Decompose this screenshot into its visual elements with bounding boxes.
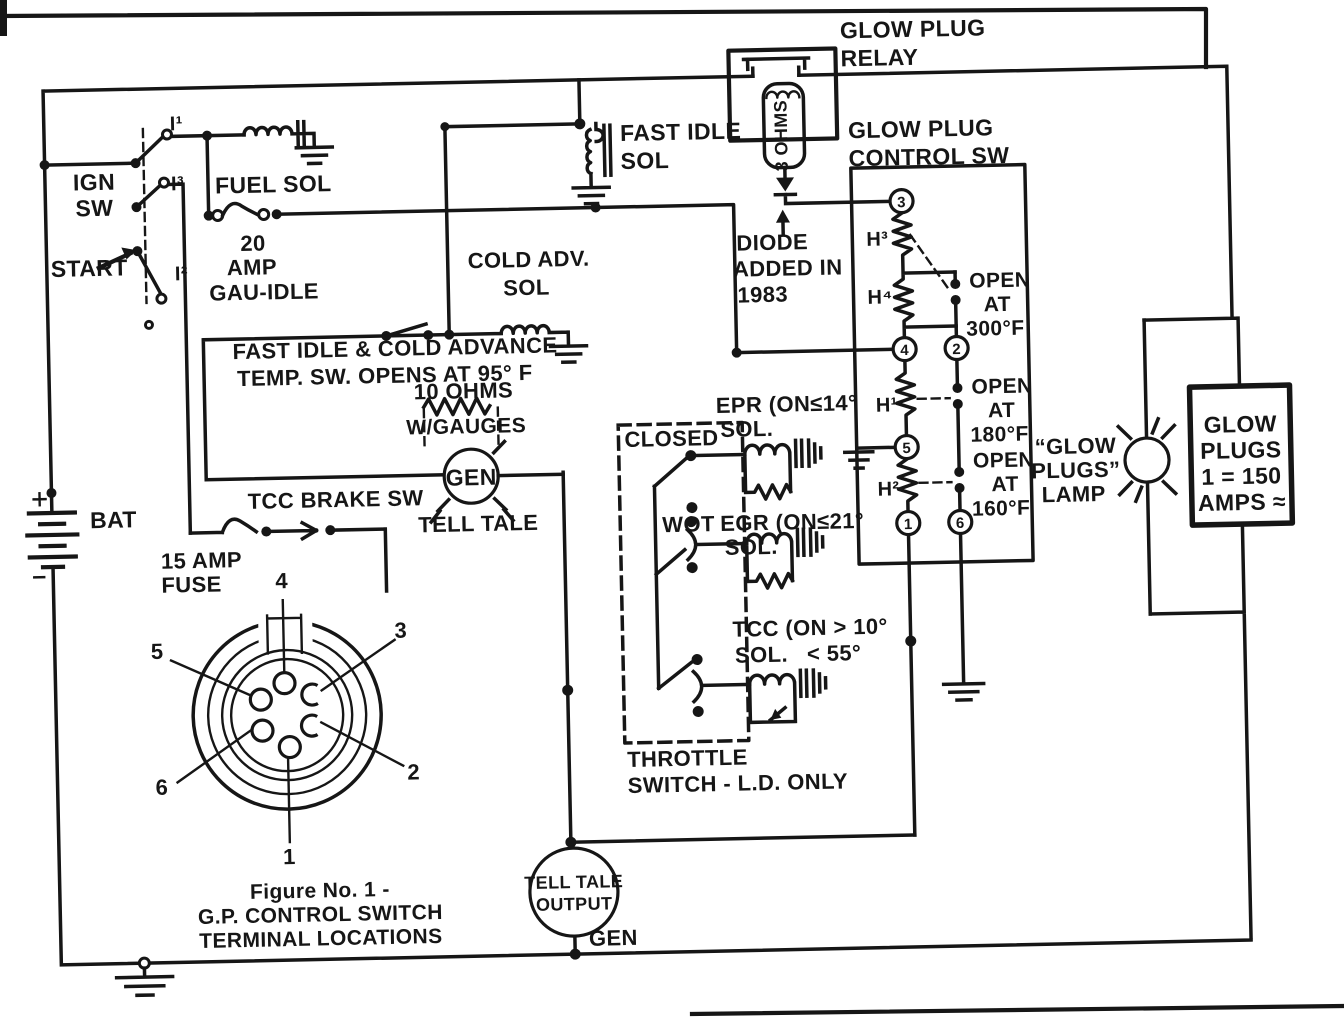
terminal-1: 1 — [904, 516, 913, 533]
lamp-label-3: LAMP — [1041, 481, 1105, 507]
tcc-label-2: SOL. — [735, 642, 788, 668]
tell-tale-label: TELL TALE — [418, 510, 539, 538]
open180-label-2: AT — [988, 399, 1016, 423]
terminal-5: 5 — [902, 440, 911, 457]
wiring-diagram-figure: BAT IGN SW START I¹ I³ I² — [0, 0, 1344, 1024]
diode-note-1: DIODE — [736, 229, 808, 255]
battery-label: BAT — [90, 506, 137, 533]
open300-label-1: OPEN — [969, 268, 1031, 292]
fuse20-label-2: AMP — [227, 254, 278, 280]
open160-label-2: AT — [991, 473, 1019, 497]
heater-h3-label: H³ — [866, 228, 888, 250]
contact-i1-label: I¹ — [170, 113, 183, 135]
cold-adv-label-1: COLD ADV. — [467, 246, 589, 274]
figure-caption: Figure No. 1 - G.P. CONTROL SWITCH TERMI… — [197, 877, 443, 953]
gen-tell-tale-lamp: GEN 10 OHMS W/GAUGES TELL TALE — [405, 376, 564, 537]
egr-label-1: EGR (ON≤21° — [720, 508, 864, 536]
open180-label-1: OPEN — [971, 374, 1033, 398]
open160-label-3: 160°F — [972, 496, 1031, 520]
heater-h2-label: H² — [877, 478, 899, 500]
glow-plug-control-switch: 3 4 2 5 1 6 H³ H⁴ H¹ H² OPEN AT 300°F OP… — [838, 113, 1042, 836]
tto-label-1: TELL TALE — [524, 871, 623, 893]
control-sw-label-1: GLOW PLUG — [848, 114, 994, 143]
pin-6-label: 6 — [155, 775, 168, 800]
fuel-sol-label: FUEL SOL — [215, 170, 332, 198]
pin-1-label: 1 — [283, 844, 296, 869]
glow-plugs-label-1: GLOW — [1203, 410, 1277, 438]
tcc-brake-switch: TCC BRAKE SW 15 AMP FUSE — [159, 485, 425, 598]
tto-label-2: OUTPUT — [536, 893, 613, 915]
ign-sw-label-1: IGN — [73, 169, 116, 196]
throttle-label-2: SWITCH - L.D. ONLY — [627, 768, 848, 798]
fuse20-label-1: 20 — [240, 230, 266, 256]
egr-label-2: SOL. — [724, 534, 777, 560]
relay-label-1: GLOW PLUG — [840, 14, 986, 43]
open160-label-1: OPEN — [973, 448, 1035, 472]
fast-idle-label-2: SOL — [620, 147, 669, 174]
relay-coil-ohms-label: 3 OHMS — [770, 100, 791, 172]
open300-label-3: 300°F — [966, 317, 1025, 341]
fast-idle-label-1: FAST IDLE — [620, 117, 742, 146]
tcc-brake-label: TCC BRAKE SW — [247, 485, 423, 514]
wot-label: WOT — [662, 511, 715, 537]
fuse15-label-1: 15 AMP — [161, 547, 243, 574]
cold-adv-label-2: SOL — [503, 275, 550, 301]
throttle-label-1: THROTTLE — [627, 744, 748, 772]
ohms10-label: 10 OHMS — [413, 377, 513, 404]
open180-label-3: 180°F — [970, 423, 1029, 447]
pin-4-label: 4 — [275, 568, 289, 593]
relay-label-2: RELAY — [840, 44, 918, 72]
glow-plugs-label-2: PLUGS — [1200, 436, 1282, 464]
terminal-2: 2 — [952, 341, 961, 358]
heater-h4-label: H⁴ — [867, 286, 893, 309]
gen-label: GEN — [445, 464, 497, 491]
fuse20-label-3: GAU-IDLE — [209, 278, 319, 305]
egr-solenoid: EGR (ON≤21° SOL. — [720, 508, 865, 589]
contact-i2-label: I² — [175, 263, 188, 285]
terminal-6: 6 — [956, 515, 965, 532]
fuel-solenoid: FUEL SOL — [214, 121, 334, 198]
terminal-3: 3 — [897, 194, 906, 211]
ign-sw-label-2: SW — [75, 195, 113, 222]
diode-note-2: ADDED IN — [733, 254, 843, 281]
contact-i3-label: I³ — [171, 173, 184, 195]
glow-plugs-box: GLOW PLUGS 1 = 150 AMPS ≈ — [1189, 385, 1292, 525]
glow-plugs-lamp: “GLOW PLUGS” LAMP — [1028, 319, 1178, 616]
tcc-label-1: TCC (ON > 10° — [732, 614, 888, 642]
figure-caption-line-3: TERMINAL LOCATIONS — [199, 925, 443, 953]
open300-label-2: AT — [983, 293, 1011, 317]
lamp-label-1: “GLOW — [1034, 433, 1116, 460]
tto-gen-label: GEN — [589, 925, 638, 951]
closed-label: CLOSED — [624, 425, 719, 452]
fuse-20a-gau-idle: 20 AMP GAU-IDLE — [203, 202, 319, 306]
diode-note-3: 1983 — [737, 282, 788, 308]
w-gauges-label: W/GAUGES — [406, 414, 526, 440]
figure-caption-line-1: Figure No. 1 - — [250, 878, 390, 904]
terminal-4: 4 — [900, 342, 909, 359]
control-sw-label-2: CONTROL SW — [848, 142, 1009, 171]
glow-plugs-label-4: AMPS ≈ — [1198, 488, 1286, 516]
main-circuit-frame — [43, 66, 1251, 965]
heater-h1-label: H¹ — [876, 394, 898, 416]
tcc-solenoid: TCC (ON > 10° SOL. < 55° — [732, 614, 889, 723]
gp-switch-connector-view: 4 3 5 2 6 1 — [149, 565, 422, 872]
tcc-label-3: < 55° — [807, 640, 862, 666]
epr-label-2: SOL. — [720, 416, 773, 442]
battery-symbol: BAT — [26, 486, 138, 577]
fuse15-label-2: FUSE — [161, 571, 222, 597]
pin-5-label: 5 — [151, 639, 164, 664]
glow-plugs-label-3: 1 = 150 — [1201, 462, 1282, 490]
epr-solenoid: EPR (ON≤14° SOL. — [716, 390, 860, 500]
lamp-label-2: PLUGS” — [1031, 457, 1121, 484]
throttle-switch: CLOSED WOT THROTTLE SWITCH - L.D. ONLY — [618, 420, 848, 798]
page-border-lines — [0, 0, 1344, 1014]
pin-3-label: 3 — [394, 618, 407, 643]
pin-2-label: 2 — [407, 759, 420, 784]
epr-label-1: EPR (ON≤14° — [716, 390, 858, 418]
start-label: START — [51, 254, 128, 282]
